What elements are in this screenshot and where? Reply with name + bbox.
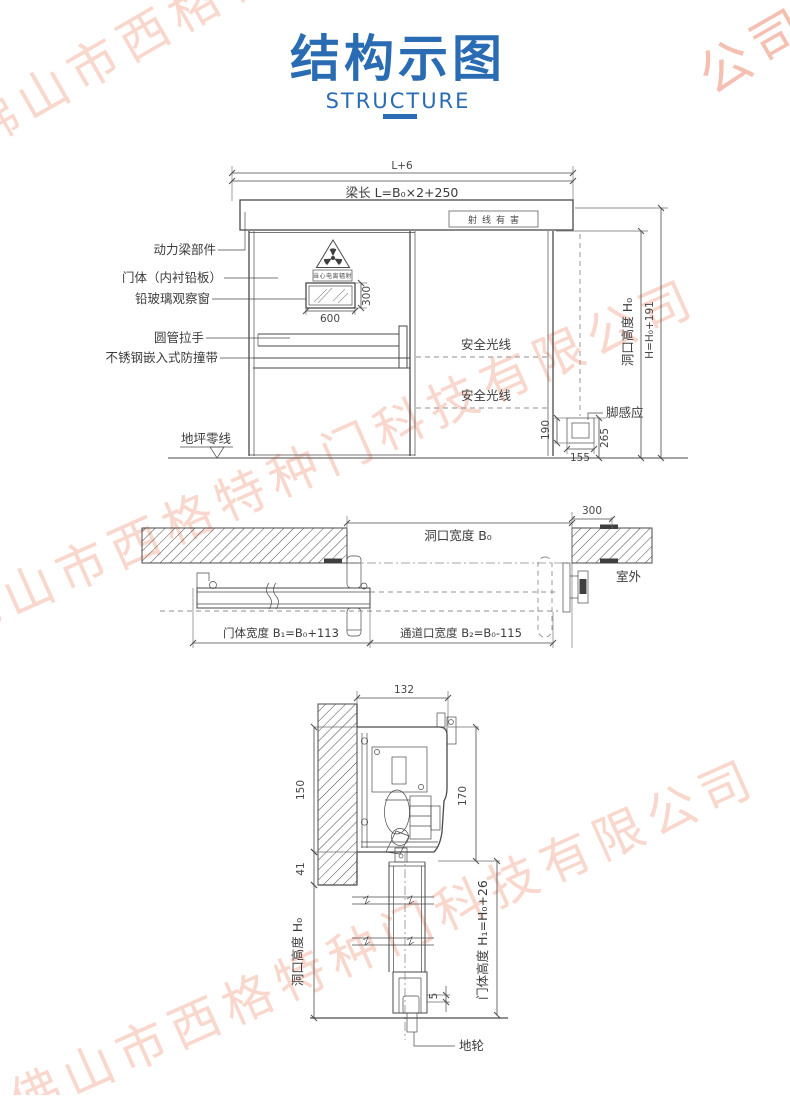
label-floor-wheel: 地轮 [459, 1038, 484, 1053]
wall-section [318, 704, 357, 885]
label-power-beam: 动力梁部件 [153, 242, 216, 257]
window-height-dim: 300 [361, 286, 373, 306]
sensor-width-dim: 155 [570, 452, 590, 464]
label-ground-zero: 地坪零线 [181, 431, 232, 446]
section-opening-height-dim: 洞口高度 H₀ [290, 918, 305, 986]
door-leaf-plan [197, 556, 370, 636]
watermark-line-bottom: 佛山市西格特种门科技有限公司 [1, 748, 766, 1095]
sensor-height-dim: 190 [540, 420, 552, 440]
right-wall-section [572, 528, 652, 563]
motor [385, 790, 410, 834]
page-subtitle: STRUCTURE [326, 89, 471, 113]
housing-height-dim: 150 [295, 780, 307, 800]
warning-caption-text: 当心电离辐射 [313, 272, 352, 280]
label-lead-glass: 铅玻璃观察窗 [135, 291, 210, 306]
opening-width-dim: 洞口宽度 B₀ [424, 528, 492, 543]
label-foot-sensor: 脚感应 [606, 405, 644, 420]
drive-housing [357, 713, 456, 854]
title-underline [383, 114, 417, 119]
door-frame-plan [563, 563, 588, 612]
dim-beam-length: 梁长 L=B₀×2+250 [346, 185, 459, 200]
left-wall-section [142, 528, 347, 563]
opening-height-dim: 洞口高度 H₀ [620, 298, 635, 366]
lintel-gap-dim: 41 [295, 862, 307, 875]
watermark-line-middle: 佛山市西格特种门科技有限公司 [0, 268, 707, 651]
hanger-wheel [392, 829, 409, 846]
handle-plan-dashed [538, 557, 552, 637]
section-width-dim: 132 [394, 684, 414, 696]
wall-thickness-dim: 300 [582, 505, 602, 517]
label-outdoor: 室外 [616, 569, 642, 584]
label-door-body: 门体（内衬铅板） [122, 270, 222, 285]
guide-roller-bottom [347, 608, 361, 636]
dim-overall-length: L+6 [391, 160, 413, 172]
total-height-dim: H=H₀+191 [644, 301, 656, 359]
watermark-corner: 公司 [689, 0, 790, 107]
guide-roller-top [347, 556, 361, 588]
floor-gap-dim: 5 [428, 993, 440, 1000]
window-width-dim: 600 [320, 313, 340, 325]
track-height-dim: 170 [457, 786, 469, 806]
radiation-sign-text: 射线有害 [468, 214, 524, 226]
page-title: 结构示图 [290, 30, 506, 88]
safety-beam-lower-label: 安全光线 [461, 388, 512, 403]
level-marker-icon [210, 447, 224, 458]
door-width-dim: 门体宽度 B₁=B₀+113 [223, 626, 339, 640]
passage-width-dim: 通道口宽度 B₂=B₀-115 [400, 626, 522, 640]
label-handle: 圆管拉手 [154, 330, 204, 345]
header: 结构示图 STRUCTURE [290, 30, 506, 119]
structure-drawing: 佛山市西格特种门科技有限公司 佛山市西格特种门科技有限公司 佛山市西格特种门科技… [0, 0, 790, 1095]
foot-sensor [567, 418, 594, 443]
sensor-elevation-dim: 265 [599, 428, 611, 448]
label-bumper: 不锈钢嵌入式防撞带 [105, 350, 218, 365]
tube-handle [258, 326, 407, 368]
door-height-dim: 门体高度 H₁=H₀+26 [475, 880, 490, 1000]
bumper-strip [253, 358, 410, 368]
safety-beam-upper-label: 安全光线 [461, 337, 512, 352]
lead-glass-window [306, 283, 355, 308]
radiation-warning-icon [317, 240, 350, 268]
gearbox [410, 796, 431, 839]
